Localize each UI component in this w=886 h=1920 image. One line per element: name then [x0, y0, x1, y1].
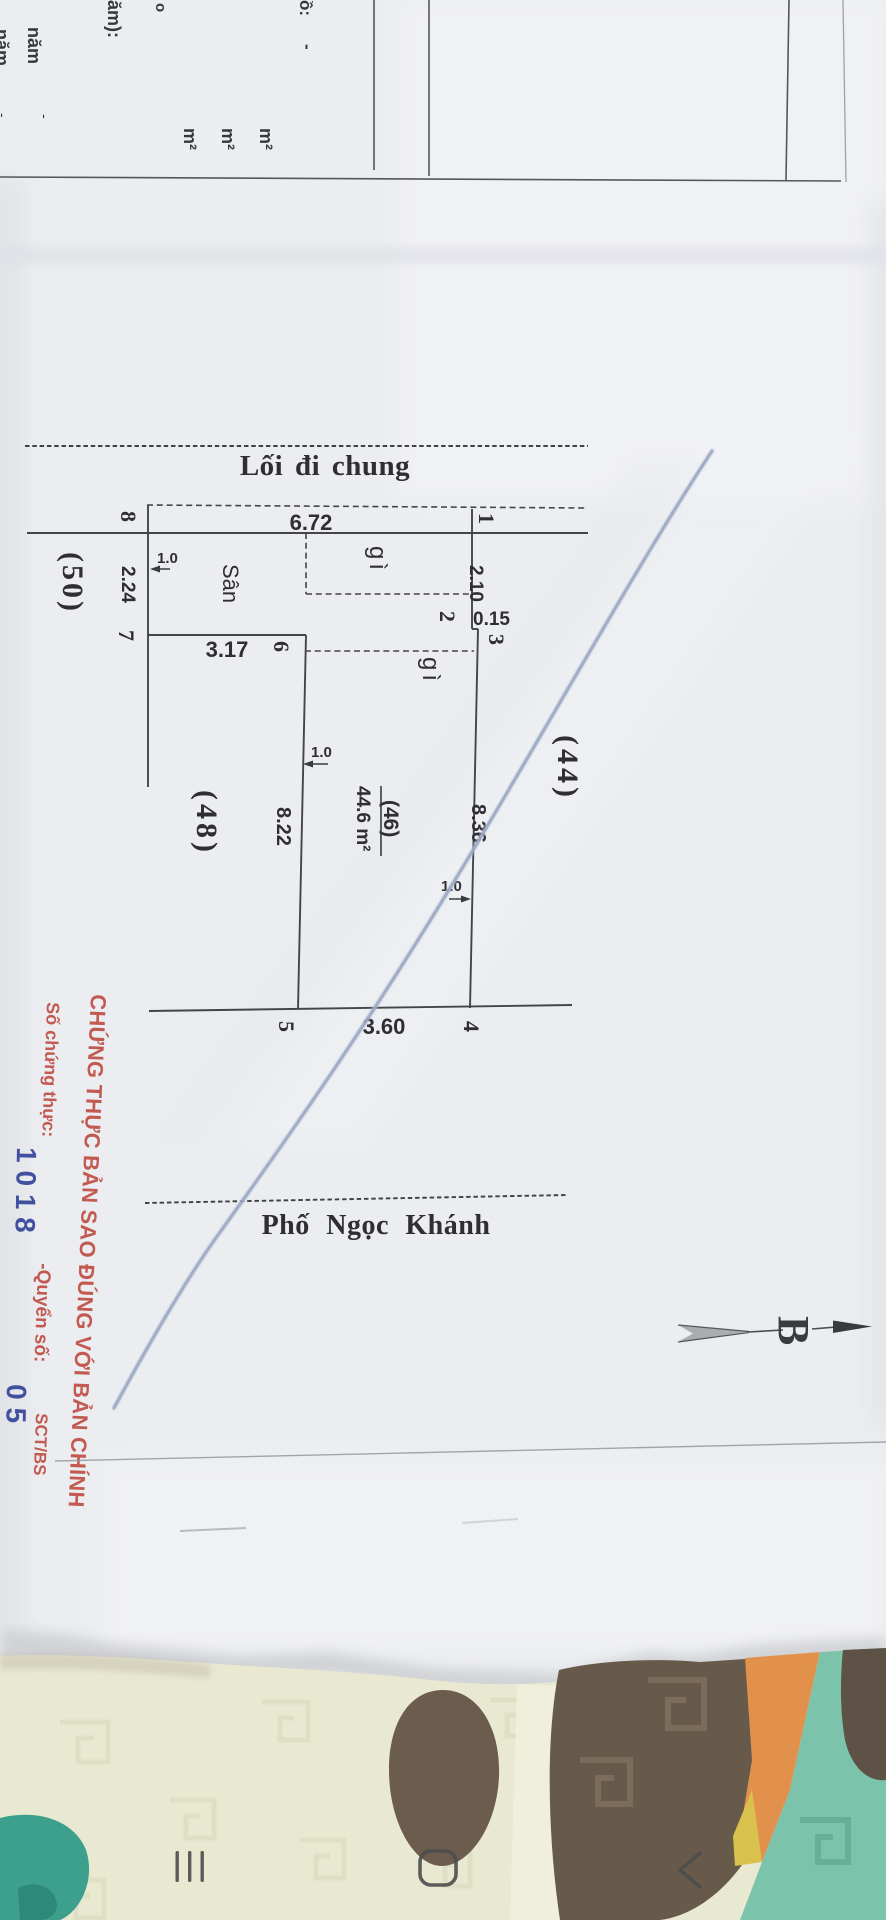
svg-text:gì: gì	[417, 657, 444, 685]
svg-text:1.0: 1.0	[311, 744, 332, 761]
svg-text:ăm):: ăm):	[104, 0, 124, 38]
svg-text:6: 6	[269, 641, 294, 652]
svg-text:7: 7	[114, 630, 139, 641]
svg-text:2.24: 2.24	[117, 566, 138, 603]
svg-text:1: 1	[474, 513, 499, 524]
svg-text:3.17: 3.17	[206, 637, 249, 662]
svg-text:3: 3	[484, 634, 509, 645]
svg-text:năm: năm	[24, 27, 44, 64]
svg-text:-: -	[298, 44, 317, 50]
svg-text:Phố Ngọc Khánh: Phố Ngọc Khánh	[262, 1210, 491, 1241]
svg-text:m²: m²	[180, 128, 200, 150]
svg-text:(46): (46)	[379, 800, 402, 837]
svg-text:(44): (44)	[551, 735, 584, 801]
svg-text:Lối đi chung: Lối đi chung	[240, 450, 410, 482]
svg-text:8: 8	[116, 511, 141, 522]
svg-text:8.22: 8.22	[272, 807, 294, 846]
svg-text:năm: năm	[0, 29, 12, 66]
svg-text:-: -	[37, 114, 53, 119]
svg-text:o: o	[152, 3, 169, 12]
svg-text:1.0: 1.0	[157, 550, 178, 567]
svg-text:SCT/BS: SCT/BS	[30, 1413, 51, 1476]
svg-text:2.10: 2.10	[465, 565, 486, 602]
svg-text:6.72: 6.72	[290, 510, 333, 535]
svg-text:ồ:: ồ:	[296, 0, 315, 16]
svg-text:0.15: 0.15	[473, 609, 510, 630]
svg-text:B: B	[769, 1316, 818, 1345]
svg-text:m²: m²	[218, 128, 238, 150]
svg-text:0 5: 0 5	[0, 1384, 32, 1423]
svg-text:2: 2	[435, 611, 460, 622]
svg-text:1 0 1 8: 1 0 1 8	[10, 1147, 42, 1233]
svg-text:4: 4	[459, 1021, 484, 1032]
svg-text:-: -	[0, 113, 11, 118]
svg-text:44.6 m²: 44.6 m²	[352, 786, 373, 851]
svg-text:m²: m²	[256, 128, 276, 150]
svg-text:(48): (48)	[190, 790, 223, 856]
svg-text:(50): (50)	[56, 552, 89, 614]
svg-text:gì: gì	[364, 546, 391, 574]
svg-text:Sân: Sân	[218, 564, 243, 603]
svg-text:5: 5	[274, 1021, 299, 1032]
svg-text:-Quyển số:: -Quyển số:	[30, 1263, 54, 1363]
